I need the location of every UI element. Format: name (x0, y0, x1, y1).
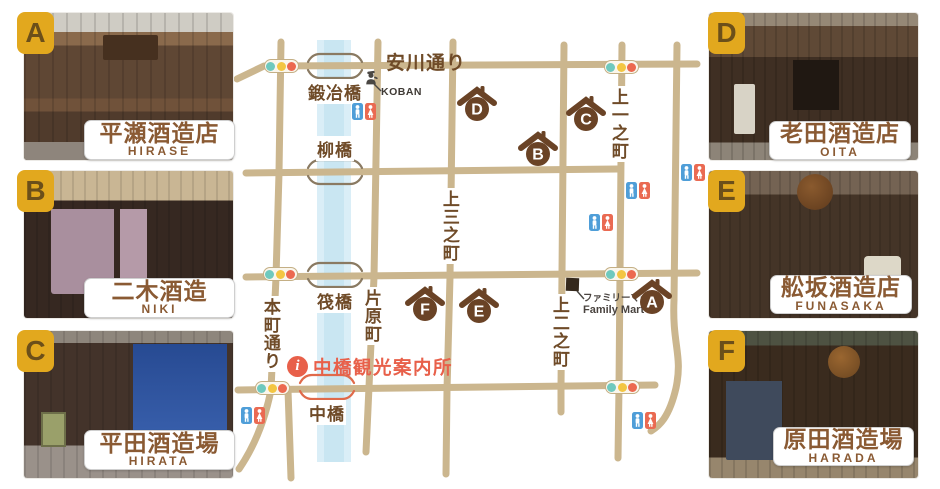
brewery-label-hirata: 平田酒造場 HIRATA (84, 430, 235, 470)
card-badge-e: E (708, 170, 745, 212)
brewery-name-jp: 舩坂酒造店 (781, 276, 901, 299)
brewery-name-jp: 平瀬酒造店 (100, 122, 220, 145)
card-badge-f: F (708, 330, 745, 372)
brewery-label-hirase: 平瀬酒造店 HIRASE (84, 120, 235, 160)
brewery-label-funasaka: 舩坂酒造店 FUNASAKA (770, 275, 912, 314)
brewery-name-en: HIRASE (128, 145, 191, 158)
card-badge-b: B (17, 170, 54, 212)
brewery-name-en: FUNASAKA (795, 300, 886, 313)
card-badge-a: A (17, 12, 54, 54)
brewery-name-en: NIKI (142, 303, 178, 316)
brewery-label-oita: 老田酒造店 OITA (769, 121, 911, 160)
brewery-name-jp: 原田酒造場 (784, 428, 904, 451)
brewery-name-jp: 二木酒造 (112, 280, 208, 303)
brewery-label-niki: 二木酒造 NIKI (84, 278, 235, 318)
card-badge-d: D (708, 12, 745, 54)
streets (237, 42, 697, 478)
brewery-name-jp: 老田酒造店 (780, 122, 900, 145)
brewery-name-en: HIRATA (129, 455, 191, 468)
brewery-name-en: OITA (820, 146, 860, 159)
brewery-name-en: HARADA (809, 452, 879, 465)
brewery-name-jp: 平田酒造場 (100, 432, 220, 455)
card-badge-c: C (17, 330, 54, 372)
brewery-label-harada: 原田酒造場 HARADA (773, 427, 914, 466)
takayama-sake-brewery-map: KOBAN ファミリーマート Family Mart i 中橋観光案内所 安川通… (0, 0, 940, 489)
pointer-lines (374, 84, 584, 299)
